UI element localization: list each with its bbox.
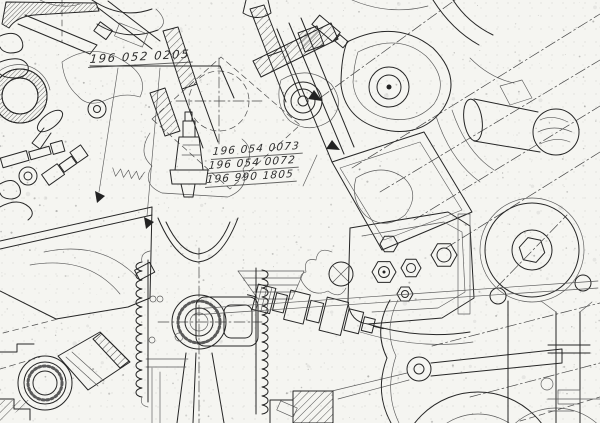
blueprint-scan: 196 052 0205 196 054 0073 196 054 0072 1… — [0, 0, 600, 423]
right-bracket-column — [541, 301, 600, 423]
pipe-fittings — [193, 278, 598, 345]
rocker-assembly — [279, 0, 514, 132]
crankcase-plate — [0, 207, 155, 319]
main-bearing — [146, 218, 304, 423]
cylindrical-tube-right — [461, 80, 579, 155]
corrugated-boot-left — [136, 251, 150, 407]
fuel-pump — [301, 212, 474, 344]
left-rocker-assembly — [0, 68, 160, 229]
bearing-eye-bottom-left — [0, 319, 130, 423]
idler-lever — [332, 349, 562, 399]
